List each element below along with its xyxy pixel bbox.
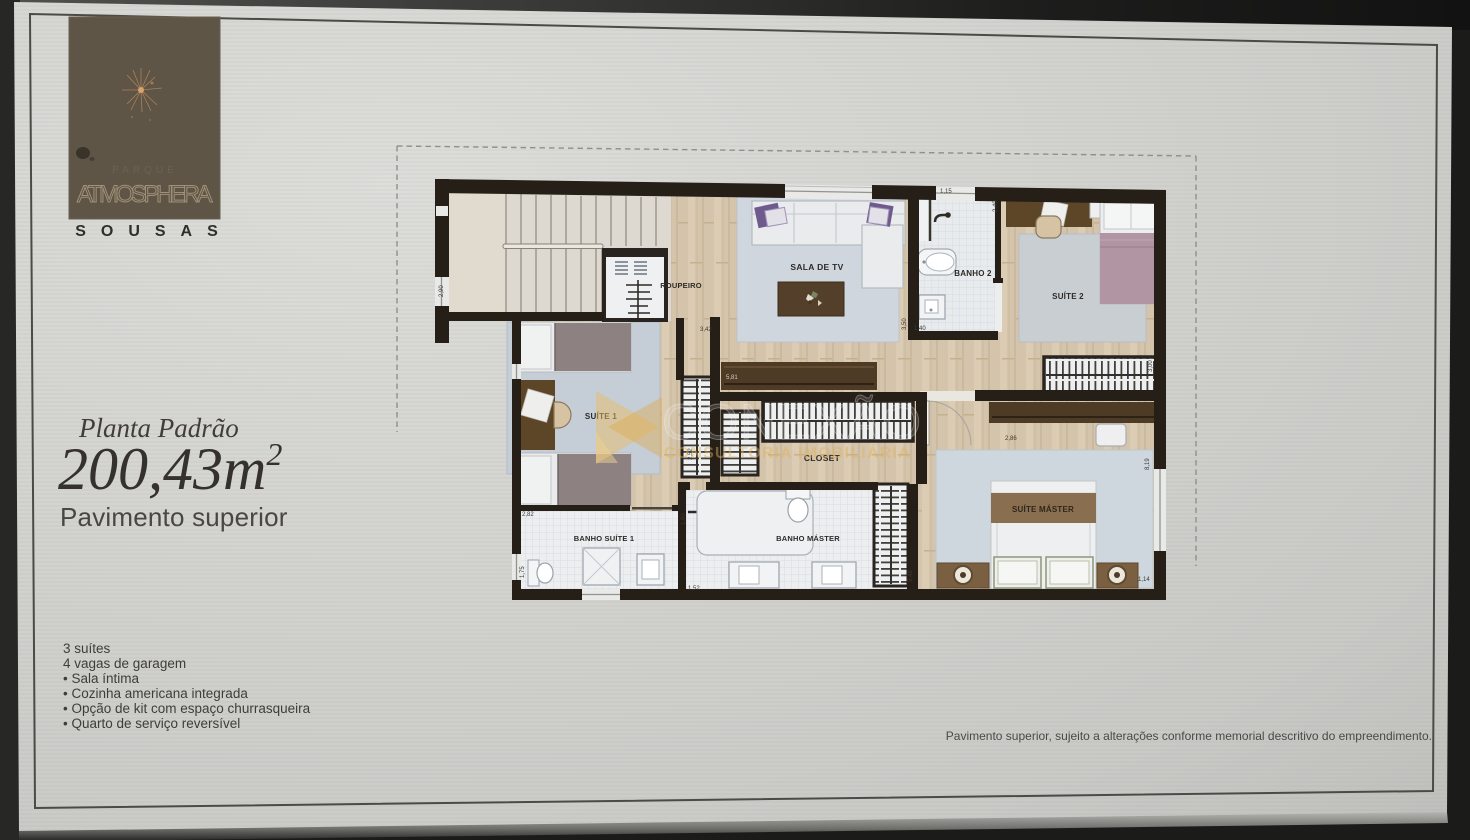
svg-text:BANHO MÁSTER: BANHO MÁSTER (776, 534, 840, 543)
svg-text:CONEXÃO: CONEXÃO (662, 394, 923, 450)
svg-text:CONSULTORIA IMOBILIÁRIA: CONSULTORIA IMOBILIÁRIA (664, 443, 911, 462)
svg-text:SUÍTE 2: SUÍTE 2 (1052, 292, 1084, 301)
svg-text:3,00: 3,00 (1148, 360, 1154, 372)
svg-text:3,50: 3,50 (902, 318, 908, 330)
svg-text:3,42: 3,42 (700, 327, 712, 333)
svg-text:1,80: 1,80 (681, 513, 687, 525)
svg-text:Pavimento superior, sujeito a: Pavimento superior, sujeito a alterações… (946, 729, 1432, 743)
svg-text:ROUPEIRO: ROUPEIRO (660, 281, 702, 290)
svg-text:PARQUE: PARQUE (112, 165, 178, 176)
svg-text:SUÍTE MÁSTER: SUÍTE MÁSTER (1012, 505, 1074, 514)
svg-text:2,82: 2,82 (522, 512, 534, 518)
svg-text:1,75: 1,75 (520, 566, 526, 578)
svg-text:• Sala íntima: • Sala íntima (63, 671, 140, 686)
svg-text:3 suítes: 3 suítes (63, 641, 111, 656)
svg-text:1,52: 1,52 (688, 586, 700, 592)
svg-text:5,49: 5,49 (908, 570, 914, 582)
svg-text:4 vagas de garagem: 4 vagas de garagem (63, 656, 186, 671)
svg-text:SALA DE TV: SALA DE TV (790, 262, 843, 272)
svg-text:1,40: 1,40 (914, 326, 926, 332)
svg-text:ATMOSPHERA: ATMOSPHERA (77, 181, 213, 208)
svg-text:BANHO SUÍTE 1: BANHO SUÍTE 1 (574, 534, 635, 543)
svg-text:2,90: 2,90 (439, 285, 445, 297)
svg-text:2,40: 2,40 (993, 200, 999, 212)
svg-text:200,43m2: 200,43m2 (58, 436, 282, 502)
svg-text:8,19: 8,19 (1145, 458, 1151, 470)
svg-text:1,14: 1,14 (1138, 577, 1150, 583)
svg-text:• Cozinha americana integrada: • Cozinha americana integrada (63, 686, 248, 701)
svg-text:• Quarto de serviço reversível: • Quarto de serviço reversível (63, 716, 240, 731)
svg-text:Pavimento superior: Pavimento superior (60, 502, 288, 532)
svg-text:• Opção de kit com espaço chur: • Opção de kit com espaço churrasqueira (63, 701, 311, 716)
svg-text:5,81: 5,81 (726, 375, 738, 381)
svg-text:2,86: 2,86 (1005, 436, 1017, 442)
svg-text:1,15: 1,15 (940, 189, 952, 195)
svg-text:BANHO 2: BANHO 2 (954, 269, 992, 278)
svg-text:SOUSAS: SOUSAS (75, 223, 233, 240)
